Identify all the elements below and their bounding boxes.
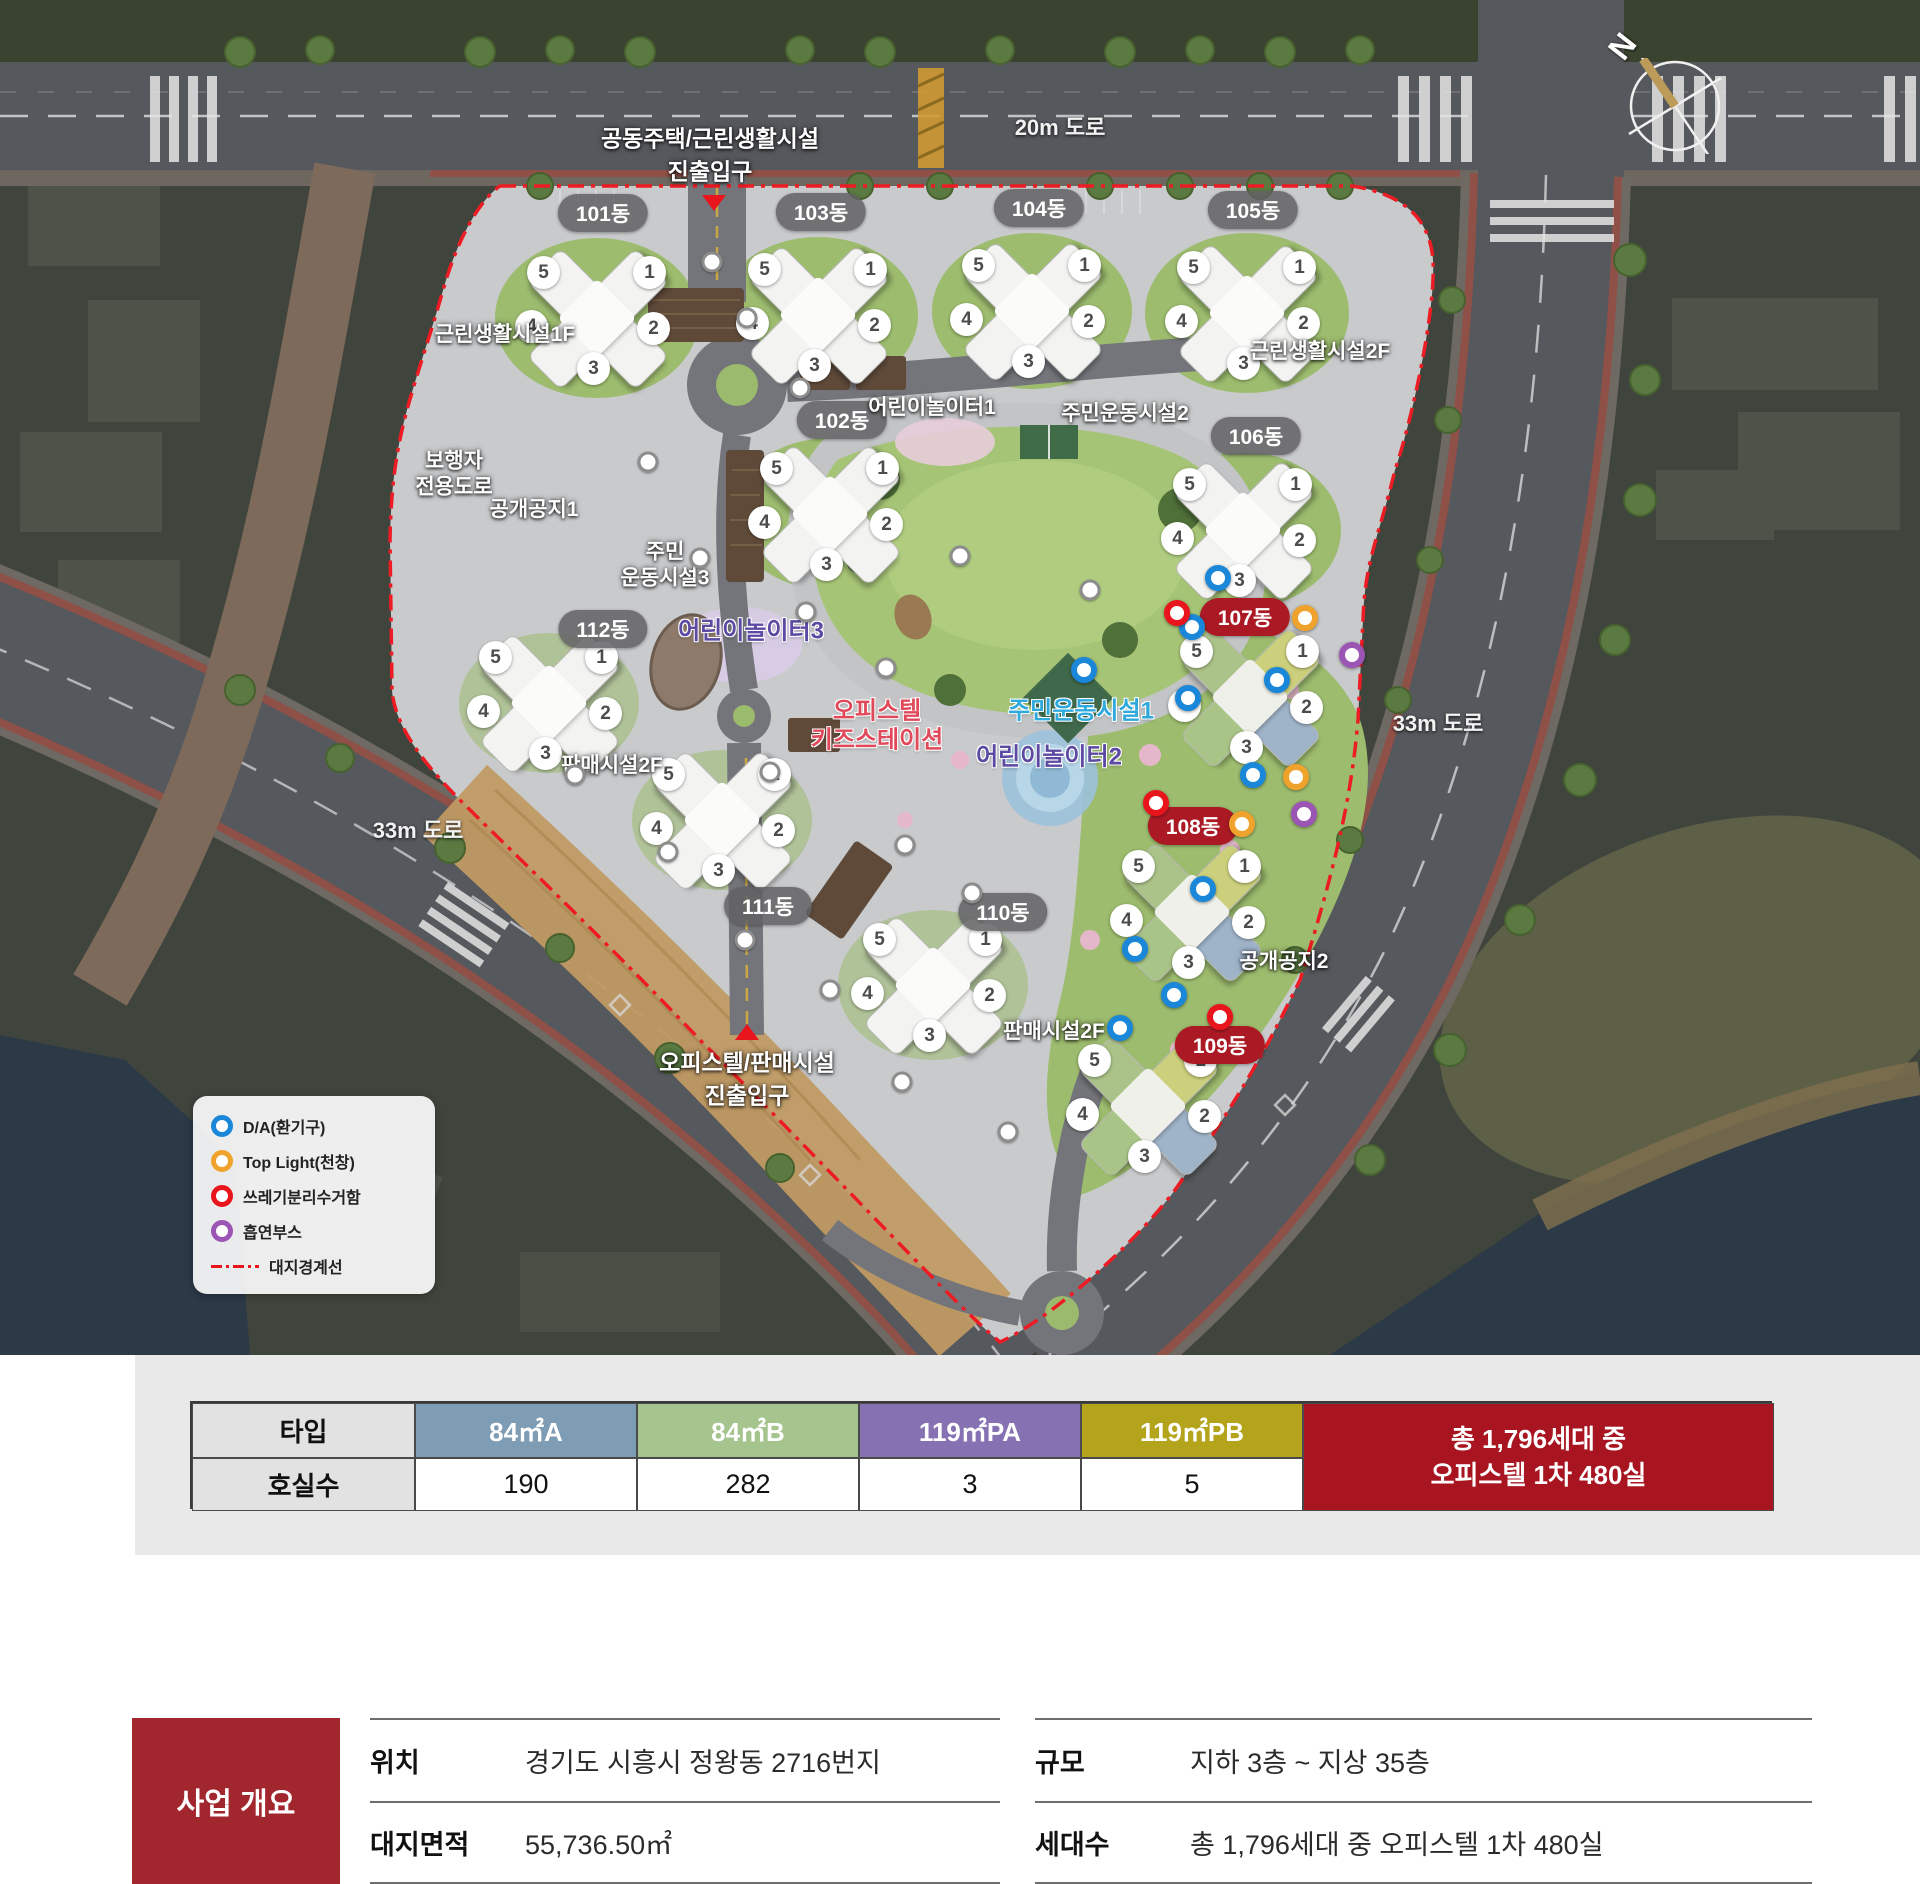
unit-line-number: 4 <box>467 695 500 728</box>
unit-line-number: 1 <box>1279 468 1312 501</box>
facility-label-4: 보행자전용도로 <box>415 448 492 499</box>
marker-da-5 <box>1190 876 1216 902</box>
unit-line-number: 3 <box>1128 1140 1161 1173</box>
unit-line-number: 2 <box>589 697 622 730</box>
marker-trash-13 <box>1164 600 1190 626</box>
unit-line-number: 1 <box>1286 635 1319 668</box>
map-legend: D/A(환기구)Top Light(천창)쓰레기분리수거함흡연부스 대지경계선 <box>193 1096 435 1294</box>
south-entrance-arrow-icon <box>735 1024 759 1040</box>
compass-rose-icon <box>1627 58 1723 154</box>
unit-line-number: 5 <box>863 923 896 956</box>
entrance-dot-14 <box>892 1072 913 1093</box>
facility-label-line: 주민운동시설2 <box>1061 401 1189 427</box>
building-badge-103동: 103동 <box>776 193 866 231</box>
marker-trash-15 <box>1207 1004 1233 1030</box>
overview-row-위치: 위치경기도 시흥시 정왕동 2716번지 <box>370 1718 1000 1801</box>
unit-line-number: 1 <box>1283 251 1316 284</box>
unit-line-number: 1 <box>854 253 887 286</box>
type-header-84㎡A: 84㎡A <box>415 1403 637 1458</box>
overview-column-2: 규모지하 3층 ~ 지상 35층세대수총 1,796세대 중 오피스텔 1차 4… <box>1035 1718 1812 1884</box>
road-label-1: 33m 도로 <box>373 813 464 845</box>
unit-line-number: 5 <box>479 641 512 674</box>
overview-value-규모: 지하 3층 ~ 지상 35층 <box>1190 1741 1430 1780</box>
unit-line-number: 2 <box>1287 307 1320 340</box>
marker-da-6 <box>1161 982 1187 1008</box>
marker-da-4 <box>1240 762 1266 788</box>
unit-line-number: 2 <box>1072 305 1105 338</box>
facility-label-3: 주민운동시설2 <box>1061 401 1189 427</box>
facility-label-11: 공개공지2 <box>1240 949 1329 975</box>
facility-label-line: 전용도로 <box>415 474 492 500</box>
unit-type-table: 타입호실수84㎡A19084㎡B282119㎡PA3119㎡PB5총 1,796… <box>190 1401 1772 1509</box>
marker-trash-14 <box>1143 790 1169 816</box>
legend-trash-icon <box>211 1185 233 1207</box>
overview-column-1: 위치경기도 시흥시 정왕동 2716번지대지면적55,736.50㎡ <box>370 1718 1000 1884</box>
entrance-dot-0 <box>702 252 723 273</box>
facility-label-line: 키즈스테이션 <box>811 726 943 755</box>
unit-line-number: 3 <box>702 854 735 887</box>
site-plan-map: 51423101동51423102동51423103동51423104동5142… <box>0 0 1920 1355</box>
unit-line-number: 3 <box>1172 946 1205 979</box>
unit-line-number: 3 <box>529 737 562 770</box>
unit-line-number: 5 <box>1078 1044 1111 1077</box>
road-label-0: 20m 도로 <box>1015 110 1106 142</box>
marker-smoke-16 <box>1339 642 1365 668</box>
unit-line-number: 4 <box>1165 305 1198 338</box>
building-106동: 51423 <box>1158 450 1328 610</box>
legend-boundary-label: 대지경계선 <box>269 1254 343 1278</box>
marker-da-0 <box>1205 565 1231 591</box>
overview-value-위치: 경기도 시흥시 정왕동 2716번지 <box>525 1741 881 1780</box>
entrance-dot-17 <box>1080 580 1101 601</box>
marker-top-11 <box>1283 764 1309 790</box>
facility-label-line: 공개공지2 <box>1240 949 1329 975</box>
building-badge-112동: 112동 <box>558 610 647 648</box>
unit-line-number: 4 <box>1161 522 1194 555</box>
unit-line-number: 2 <box>1290 691 1323 724</box>
unit-line-number: 3 <box>1012 345 1045 378</box>
overview-title: 사업 개요 <box>132 1718 340 1884</box>
legend-label-smoke: 흡연부스 <box>243 1219 302 1243</box>
legend-label-da: D/A(환기구) <box>243 1114 325 1138</box>
entrance-dot-9 <box>895 835 916 856</box>
entrance-dot-1 <box>737 308 758 329</box>
overview-row-세대수: 세대수총 1,796세대 중 오피스텔 1차 480실 <box>1035 1801 1812 1884</box>
facility-label-8: 오피스텔키즈스테이션 <box>811 697 943 756</box>
entrance-dot-2 <box>790 378 811 399</box>
unit-line-number: 5 <box>527 256 560 289</box>
type-table-band: 타입호실수84㎡A19084㎡B282119㎡PA3119㎡PB5총 1,796… <box>135 1355 1920 1555</box>
road-label-2: 33m 도로 <box>1393 706 1484 738</box>
unit-line-number: 3 <box>810 548 843 581</box>
entrance-label-line: 공동주택/근린생활시설 <box>601 123 819 156</box>
legend-top-icon <box>211 1150 233 1172</box>
facility-label-line: 판매시설2F <box>1003 1019 1105 1045</box>
unit-line-number: 5 <box>1173 468 1206 501</box>
entrance-dot-13 <box>820 980 841 1001</box>
unit-line-number: 2 <box>637 312 670 345</box>
facility-label-5: 공개공지1 <box>490 497 579 523</box>
facility-label-line: 운동시설3 <box>621 565 710 591</box>
facility-label-line: 오피스텔 <box>811 697 943 726</box>
marker-da-7 <box>1122 936 1148 962</box>
marker-da-9 <box>1071 657 1097 683</box>
unit-line-number: 2 <box>762 814 795 847</box>
entrance-dot-16 <box>735 930 756 951</box>
unit-line-number: 4 <box>851 977 884 1010</box>
unit-line-number: 3 <box>1230 731 1263 764</box>
facility-label-2: 어린이놀이터1 <box>868 395 996 421</box>
overview-value-세대수: 총 1,796세대 중 오피스텔 1차 480실 <box>1190 1823 1604 1862</box>
overview-value-대지면적: 55,736.50㎡ <box>525 1823 672 1862</box>
unit-line-number: 4 <box>1066 1098 1099 1131</box>
legend-smoke-icon <box>211 1220 233 1242</box>
marker-top-10 <box>1292 605 1318 631</box>
building-105동: 51423 <box>1162 233 1332 393</box>
entrance-dot-10 <box>962 883 983 904</box>
legend-label-trash: 쓰레기분리수거함 <box>243 1184 361 1208</box>
overview-row-대지면적: 대지면적55,736.50㎡ <box>370 1801 1000 1884</box>
unit-line-number: 5 <box>1122 850 1155 883</box>
unit-line-number: 1 <box>1228 850 1261 883</box>
unit-line-number: 4 <box>748 506 781 539</box>
legend-item-top: Top Light(천창) <box>211 1149 419 1173</box>
unit-line-number: 1 <box>633 256 666 289</box>
entrance-dot-6 <box>950 546 971 567</box>
table-row-header-count: 호실수 <box>192 1458 415 1511</box>
entrance-label-line: 진출입구 <box>601 156 819 189</box>
facility-label-line: 어린이놀이터2 <box>976 742 1122 771</box>
unit-line-number: 4 <box>1110 904 1143 937</box>
facility-label-13: 판매시설2F <box>1003 1019 1105 1045</box>
building-badge-109동: 109동 <box>1175 1026 1265 1064</box>
overview-label-위치: 위치 <box>370 1741 525 1780</box>
unit-line-number: 5 <box>1180 635 1213 668</box>
overview-label-규모: 규모 <box>1035 1741 1190 1780</box>
legend-label-top: Top Light(천창) <box>243 1149 355 1173</box>
summary-box: 총 1,796세대 중오피스텔 1차 480실 <box>1303 1403 1774 1511</box>
legend-items: D/A(환기구)Top Light(천창)쓰레기분리수거함흡연부스 <box>211 1114 419 1243</box>
overview-row-규모: 규모지하 3층 ~ 지상 35층 <box>1035 1718 1812 1801</box>
unit-line-number: 2 <box>870 508 903 541</box>
entrance-dot-12 <box>565 765 586 786</box>
entrance-dot-15 <box>998 1122 1019 1143</box>
marker-smoke-17 <box>1291 801 1317 827</box>
unit-line-number: 3 <box>913 1019 946 1052</box>
north-entrance-label: 공동주택/근린생활시설진출입구 <box>601 123 819 190</box>
type-header-119㎡PB: 119㎡PB <box>1081 1403 1303 1458</box>
unit-line-number: 4 <box>950 303 983 336</box>
unit-line-number: 5 <box>760 452 793 485</box>
facility-label-0: 근린생활시설1F <box>435 322 575 348</box>
south-entrance-label: 오피스텔/판매시설진출입구 <box>659 1047 835 1114</box>
type-header-84㎡B: 84㎡B <box>637 1403 859 1458</box>
building-badge-105동: 105동 <box>1208 191 1298 229</box>
building-104동: 51423 <box>947 231 1117 391</box>
unit-line-number: 2 <box>858 309 891 342</box>
unit-line-number: 1 <box>866 452 899 485</box>
building-103동: 51423 <box>733 235 903 395</box>
type-count-84㎡A: 190 <box>415 1458 637 1511</box>
legend-item-trash: 쓰레기분리수거함 <box>211 1184 419 1208</box>
overview-label-세대수: 세대수 <box>1035 1823 1190 1862</box>
building-badge-101동: 101동 <box>558 194 648 232</box>
facility-label-line: 보행자 <box>415 448 492 474</box>
facility-label-line: 주민운동시설1 <box>1008 696 1154 725</box>
north-entrance-arrow-icon <box>702 195 726 211</box>
facility-label-1: 근린생활시설2F <box>1250 339 1390 365</box>
building-101동: 51423 <box>512 238 682 398</box>
table-row-header-type: 타입 <box>192 1403 415 1458</box>
legend-da-icon <box>211 1115 233 1137</box>
building-badge-104동: 104동 <box>994 189 1084 227</box>
unit-line-number: 1 <box>1068 249 1101 282</box>
marker-top-12 <box>1229 811 1255 837</box>
unit-line-number: 5 <box>1177 251 1210 284</box>
marker-da-2 <box>1264 667 1290 693</box>
project-overview: 사업 개요 위치경기도 시흥시 정왕동 2716번지대지면적55,736.50㎡… <box>0 1555 1920 1884</box>
entrance-dot-7 <box>876 658 897 679</box>
facility-label-line: 공개공지1 <box>490 497 579 523</box>
entrance-dot-5 <box>796 602 817 623</box>
unit-line-number: 2 <box>1188 1100 1221 1133</box>
unit-line-number: 2 <box>973 979 1006 1012</box>
facility-label-10: 어린이놀이터2 <box>976 742 1122 771</box>
building-badge-106동: 106동 <box>1211 417 1301 455</box>
overview-label-대지면적: 대지면적 <box>370 1823 525 1862</box>
building-badge-107동: 107동 <box>1200 598 1290 636</box>
facility-label-line: 어린이놀이터1 <box>868 395 996 421</box>
type-count-119㎡PB: 5 <box>1081 1458 1303 1511</box>
type-count-119㎡PA: 3 <box>859 1458 1081 1511</box>
summary-line: 오피스텔 1차 480실 <box>1431 1457 1647 1493</box>
entrance-dot-11 <box>658 842 679 863</box>
unit-line-number: 5 <box>962 249 995 282</box>
entrance-dot-8 <box>760 762 781 783</box>
legend-boundary-row: 대지경계선 <box>211 1254 419 1278</box>
legend-item-da: D/A(환기구) <box>211 1114 419 1138</box>
type-header-119㎡PA: 119㎡PA <box>859 1403 1081 1458</box>
unit-line-number: 2 <box>1232 906 1265 939</box>
legend-item-smoke: 흡연부스 <box>211 1219 419 1243</box>
boundary-line-sample <box>211 1265 259 1268</box>
entrance-label-line: 진출입구 <box>659 1080 835 1113</box>
site-plan-page: 51423101동51423102동51423103동51423104동5142… <box>0 0 1920 1884</box>
facility-label-9: 주민운동시설1 <box>1008 696 1154 725</box>
unit-line-number: 4 <box>640 812 673 845</box>
compass: N <box>1627 58 1723 154</box>
entrance-dot-3 <box>638 452 659 473</box>
facility-label-line: 근린생활시설1F <box>435 322 575 348</box>
unit-line-number: 5 <box>748 253 781 286</box>
entrance-dot-4 <box>690 548 711 569</box>
entrance-label-line: 오피스텔/판매시설 <box>659 1047 835 1080</box>
building-102동: 51423 <box>745 434 915 594</box>
type-count-84㎡B: 282 <box>637 1458 859 1511</box>
marker-da-3 <box>1175 685 1201 711</box>
facility-label-line: 근린생활시설2F <box>1250 339 1390 365</box>
unit-line-number: 2 <box>1283 524 1316 557</box>
building-badge-111동: 111동 <box>724 887 812 925</box>
unit-line-number: 3 <box>577 352 610 385</box>
marker-da-8 <box>1107 1015 1133 1041</box>
summary-line: 총 1,796세대 중 <box>1451 1421 1626 1457</box>
